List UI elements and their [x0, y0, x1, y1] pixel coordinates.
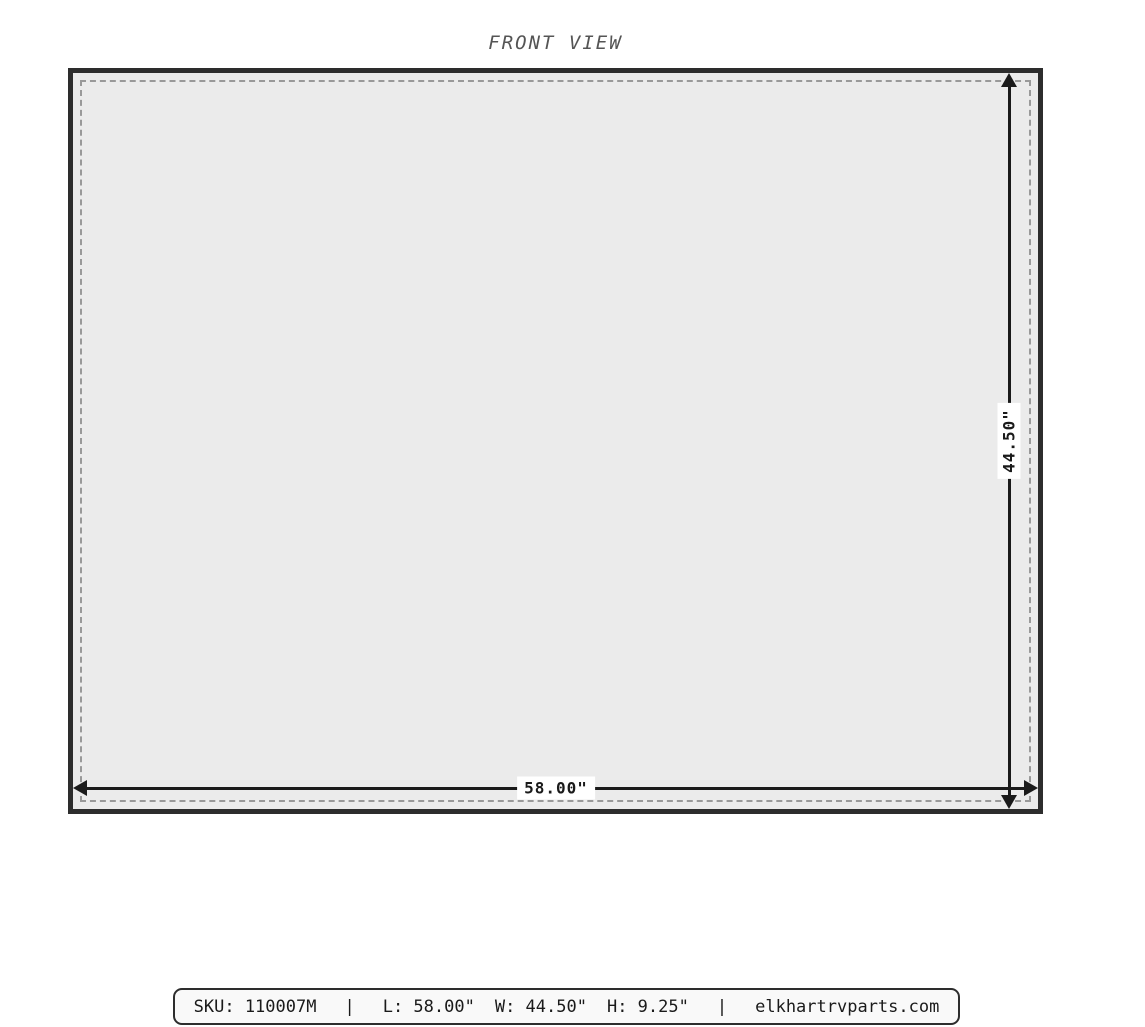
width-text: W: 44.50"	[495, 997, 587, 1017]
width-dimension-label: 58.00"	[517, 777, 595, 800]
website-text: elkhartrvparts.com	[755, 997, 939, 1017]
arrowhead-right-icon	[1024, 780, 1038, 796]
part-outline: 44.50" 58.00"	[68, 68, 1043, 814]
length-text: L: 58.00"	[383, 997, 475, 1017]
separator-text: |	[717, 997, 727, 1017]
sku-text: SKU: 110007M	[194, 997, 317, 1017]
stitch-border	[80, 80, 1031, 802]
height-dimension-label: 44.50"	[998, 403, 1021, 479]
separator-text: |	[344, 997, 354, 1017]
height-text: H: 9.25"	[607, 997, 689, 1017]
arrowhead-down-icon	[1001, 795, 1017, 809]
view-title: FRONT VIEW	[68, 32, 1043, 54]
info-bar: SKU: 110007M | L: 58.00" W: 44.50" H: 9.…	[173, 988, 960, 1025]
